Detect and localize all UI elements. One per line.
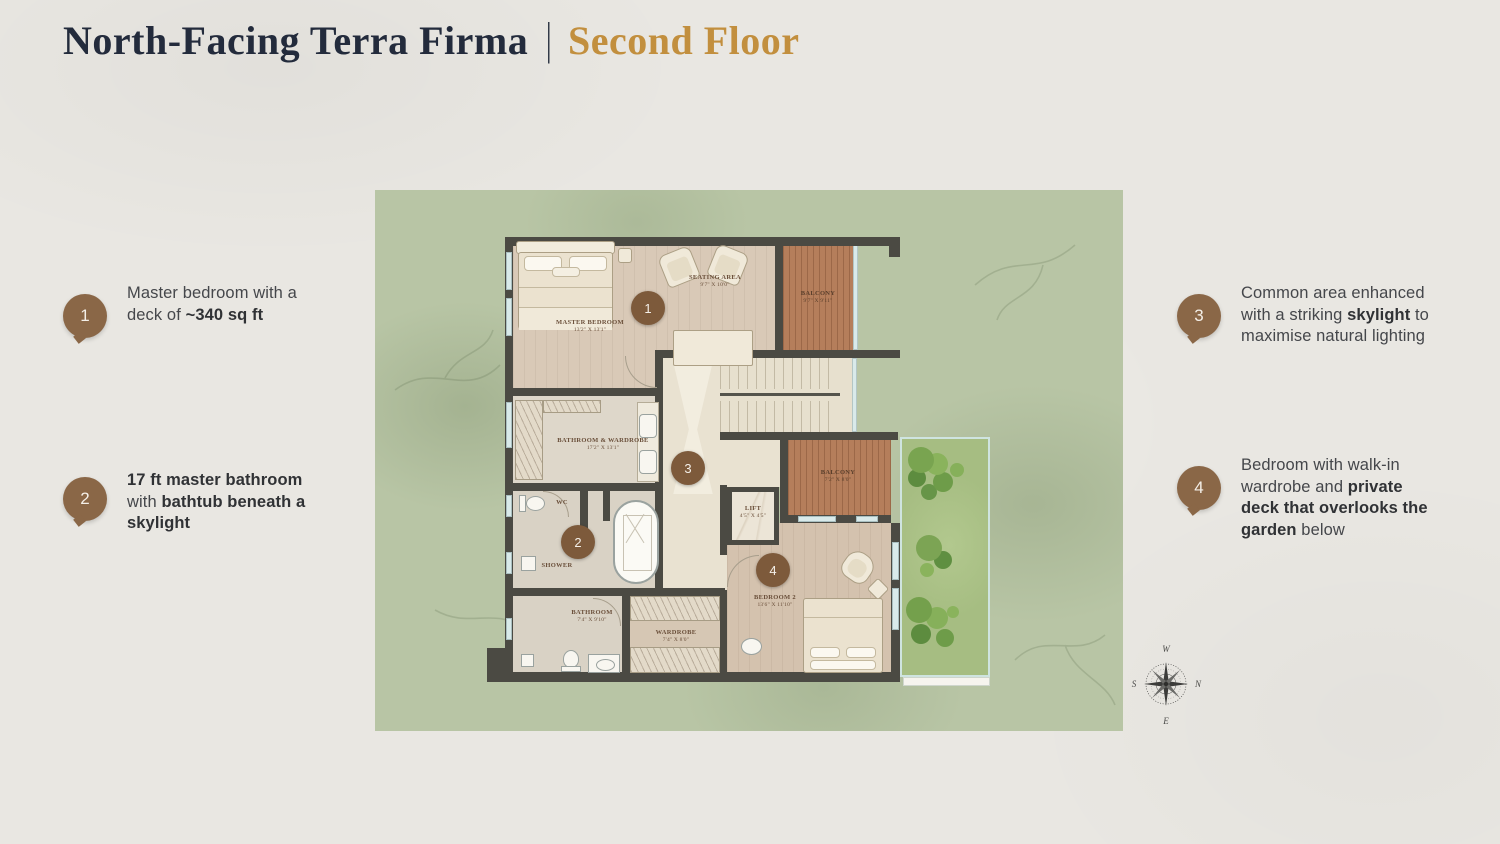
room-dims: 13'2" x 13'1"	[545, 327, 635, 334]
room-dims: 7'4" x 8'0"	[639, 637, 713, 644]
wall	[505, 388, 663, 396]
pillow	[810, 647, 840, 658]
plan-marker-3: 3	[671, 451, 705, 485]
room-dims: 13'6" x 11'10"	[740, 602, 810, 609]
stair-side-rail	[852, 358, 857, 432]
deck-edge	[903, 677, 990, 686]
compass-n: N	[1194, 679, 1202, 689]
wall	[780, 438, 788, 523]
wall	[622, 596, 630, 673]
master-bed	[518, 252, 613, 329]
callout-4-badge: 4	[1177, 466, 1221, 510]
window	[506, 618, 512, 640]
room-label-balcony-mid: BALCONY 7'2" x 8'0"	[803, 469, 873, 485]
room-name: WC	[556, 499, 568, 506]
coffee-table	[673, 330, 753, 366]
room-label-lift: LIFT 4'5" x 4'5"	[727, 505, 779, 521]
page-title-accent: Second Floor	[568, 17, 800, 64]
stool	[741, 638, 762, 655]
room-label-bathroom-wardrobe: BATHROOM & WARDROBE 17'2" x 13'1"	[548, 437, 658, 453]
title-divider: |	[546, 12, 552, 65]
floor-lift-lobby	[720, 440, 780, 487]
compass-w: W	[1162, 644, 1171, 654]
pillow	[846, 647, 876, 658]
callout-1-badge: 1	[63, 294, 107, 338]
toilet-tank	[519, 495, 526, 512]
room-label-wardrobe: WARDROBE 7'4" x 8'0"	[639, 629, 713, 645]
room-label-master-bedroom: MASTER BEDROOM 13'2" x 13'1"	[545, 319, 635, 335]
bathtub	[613, 500, 659, 584]
window	[892, 542, 899, 580]
room-label-bathroom: BATHROOM 7'4" x 9'10"	[555, 609, 629, 625]
room-name: BATHROOM & WARDROBE	[557, 437, 648, 444]
shower-drain	[521, 556, 536, 571]
room-name: SEATING AREA	[689, 274, 741, 281]
stair-treads	[720, 401, 832, 432]
wardrobe-shelves	[630, 647, 720, 673]
bush-cluster	[908, 447, 934, 473]
sink	[639, 450, 657, 474]
wall	[720, 590, 727, 673]
plan-marker-4: 4	[756, 553, 790, 587]
bush-cluster	[916, 535, 942, 561]
callout-3-badge: 3	[1177, 294, 1221, 338]
wall	[487, 672, 900, 682]
room-label-shower: SHOWER	[535, 562, 579, 570]
floor-plan-map: MASTER BEDROOM 13'2" x 13'1" SEATING ARE…	[375, 190, 1123, 731]
garden-area	[900, 437, 990, 677]
basin	[596, 659, 615, 671]
window	[506, 252, 512, 290]
room-name: BALCONY	[821, 469, 856, 476]
room-name: WARDROBE	[656, 629, 697, 636]
nightstand	[618, 248, 632, 263]
window	[506, 298, 512, 336]
callout-2-badge: 2	[63, 477, 107, 521]
callout-1-text: Master bedroom with a deck of ~340 sq ft	[127, 283, 323, 326]
wall	[720, 485, 727, 555]
room-dims: 7'2" x 8'0"	[803, 477, 873, 484]
compass-rose: W N S E	[1128, 640, 1204, 728]
sink	[639, 414, 657, 438]
page-title-main: North-Facing Terra Firma	[63, 17, 528, 64]
blanket-fold	[519, 287, 612, 288]
pillow	[552, 267, 580, 277]
blanket-fold	[804, 617, 882, 618]
room-label-seating-area: SEATING AREA 9'7" x 10'0"	[670, 274, 760, 290]
vanity-sink	[588, 654, 620, 673]
room-dims: 7'4" x 9'10"	[555, 617, 629, 624]
balcony-rail	[853, 245, 858, 350]
wall	[603, 491, 610, 521]
compass-e: E	[1162, 716, 1169, 726]
pillow	[810, 660, 876, 670]
room-label-balcony-top: BALCONY 9'7" x 9'11"	[783, 290, 853, 306]
closet-shelves	[515, 400, 543, 480]
compass-s: S	[1132, 679, 1137, 689]
room-label-bedroom-2: BEDROOM 2 13'6" x 11'10"	[740, 594, 810, 610]
wall	[720, 432, 898, 440]
chair-seat	[845, 556, 869, 580]
shower-drain	[521, 654, 534, 667]
callout-3-text: Common area enhanced with a striking sky…	[1241, 283, 1447, 348]
room-name: BEDROOM 2	[754, 594, 796, 601]
room-name: BALCONY	[801, 290, 836, 297]
room-dims: 4'5" x 4'5"	[727, 513, 779, 520]
bedroom2-bed	[803, 598, 883, 673]
stair-rail	[720, 393, 840, 396]
room-name: SHOWER	[541, 562, 572, 569]
bush-cluster	[906, 597, 932, 623]
slide-canvas: North-Facing Terra Firma | Second Floor …	[0, 0, 1500, 844]
plan-marker-2: 2	[561, 525, 595, 559]
room-dims: 9'7" x 9'11"	[783, 298, 853, 305]
closet-shelves	[543, 400, 601, 413]
window	[506, 552, 512, 574]
room-name: MASTER BEDROOM	[556, 319, 624, 326]
wall	[505, 588, 725, 596]
callout-2-text: 17 ft master bathroom with bathtub benea…	[127, 470, 327, 535]
window	[506, 495, 512, 517]
callout-4-text: Bedroom with walk-in wardrobe and privat…	[1241, 455, 1437, 541]
room-dims: 17'2" x 13'1"	[548, 445, 658, 452]
wall	[775, 237, 783, 358]
page-title: North-Facing Terra Firma | Second Floor	[63, 12, 800, 69]
room-label-wc: WC	[547, 499, 577, 507]
room-dims: 9'7" x 10'0"	[670, 282, 760, 289]
room-name: LIFT	[745, 505, 761, 512]
window	[892, 588, 899, 630]
plan-marker-1: 1	[631, 291, 665, 325]
window	[798, 516, 836, 522]
staircase	[720, 358, 855, 432]
window	[506, 402, 512, 448]
wall	[889, 237, 900, 257]
window	[856, 516, 878, 522]
room-name: BATHROOM	[571, 609, 612, 616]
wardrobe-shelves	[630, 596, 720, 621]
toilet-tank	[561, 666, 581, 672]
